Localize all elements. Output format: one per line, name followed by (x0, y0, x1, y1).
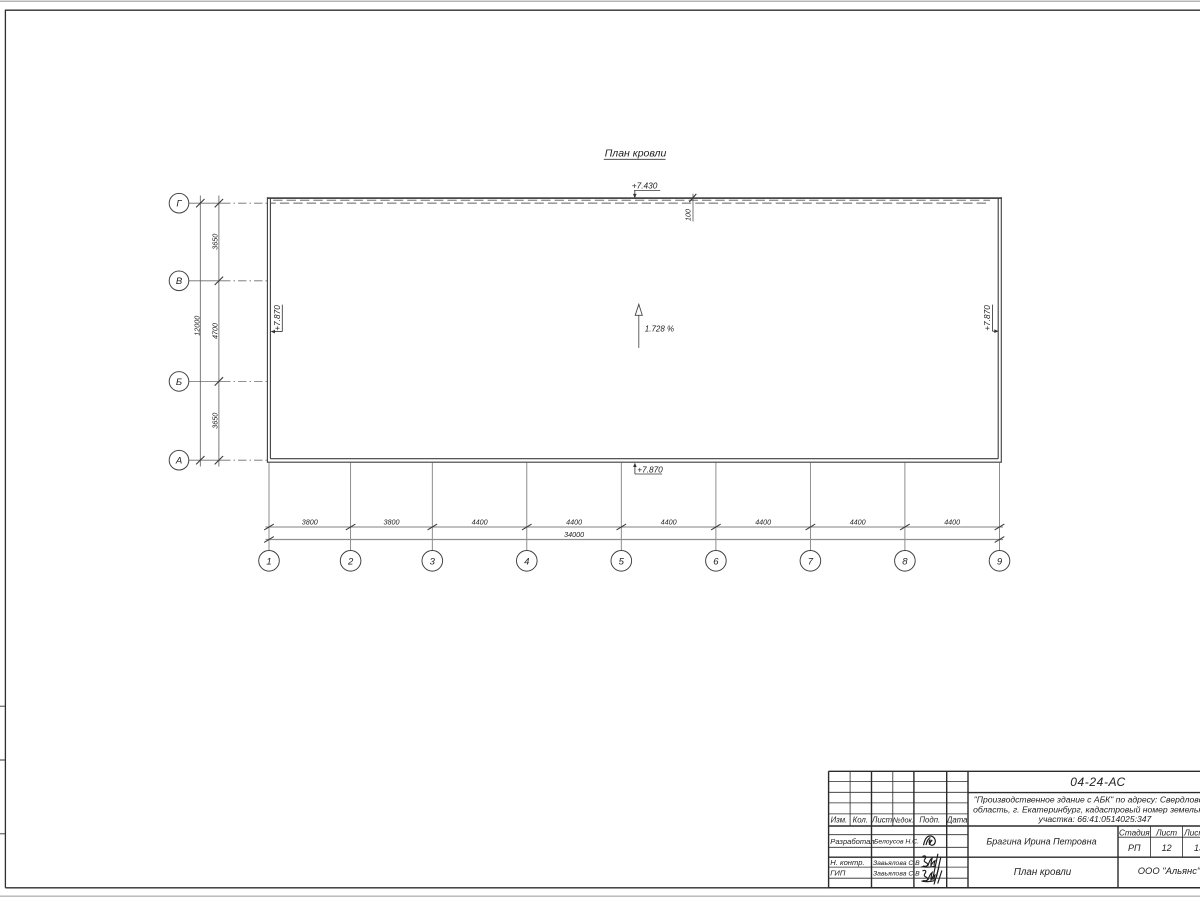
svg-text:Белоусов Н.С.: Белоусов Н.С. (874, 839, 919, 846)
svg-text:12: 12 (1162, 843, 1172, 853)
svg-text:5: 5 (619, 556, 625, 567)
svg-text:Г: Г (176, 199, 182, 210)
svg-text:34000: 34000 (564, 530, 584, 539)
svg-text:13: 13 (1194, 843, 1200, 853)
svg-text:2: 2 (347, 556, 354, 567)
svg-text:участка: 66:41:0514025:347: участка: 66:41:0514025:347 (1038, 814, 1153, 824)
svg-text:4400: 4400 (755, 518, 771, 527)
svg-text:4400: 4400 (944, 518, 960, 527)
svg-text:12000: 12000 (192, 316, 201, 336)
svg-text:1.728 %: 1.728 % (645, 325, 674, 334)
svg-text:Лист: Лист (871, 816, 893, 825)
svg-text:Лист: Лист (1155, 828, 1177, 837)
svg-text:В: В (176, 276, 183, 287)
svg-text:Листов: Листов (1183, 828, 1200, 837)
svg-text:ГИП: ГИП (830, 868, 846, 877)
svg-text:Подп.: Подп. (919, 816, 940, 825)
svg-text:4400: 4400 (566, 518, 582, 527)
svg-text:1: 1 (266, 556, 271, 567)
svg-text:План кровли: План кровли (1014, 867, 1072, 878)
svg-text:Дата: Дата (946, 816, 968, 825)
svg-text:"Производственное здание с АБК: "Производственное здание с АБК" по адрес… (974, 794, 1200, 804)
svg-text:9: 9 (997, 556, 1003, 567)
svg-text:+7.430: +7.430 (632, 181, 658, 191)
svg-text:Б: Б (176, 377, 182, 388)
svg-text:область, г. Екатеринбург, када: область, г. Екатеринбург, кадастровый но… (973, 804, 1200, 814)
svg-text:Н. контр.: Н. контр. (830, 858, 864, 867)
svg-text:+7.870: +7.870 (982, 305, 992, 331)
svg-text:Завьялова С.В: Завьялова С.В (873, 870, 920, 877)
svg-text:+7.870: +7.870 (637, 464, 663, 474)
svg-text:№док.: №док. (893, 816, 914, 825)
svg-text:4400: 4400 (661, 518, 677, 527)
svg-text:ООО "Альянс": ООО "Альянс" (1138, 865, 1200, 876)
svg-text:Разработал: Разработал (830, 837, 875, 846)
svg-text:3650: 3650 (211, 413, 220, 429)
svg-text:7: 7 (808, 556, 814, 567)
svg-text:3650: 3650 (211, 234, 220, 250)
svg-text:Брагина Ирина Петровна: Брагина Ирина Петровна (986, 837, 1096, 847)
svg-text:4400: 4400 (850, 518, 866, 527)
svg-text:Изм.: Изм. (831, 816, 848, 825)
svg-text:6: 6 (713, 556, 719, 567)
svg-text:3800: 3800 (302, 518, 318, 527)
svg-text:4: 4 (524, 556, 529, 567)
svg-text:4700: 4700 (211, 323, 220, 339)
svg-text:А: А (175, 456, 182, 467)
svg-text:100: 100 (683, 209, 692, 221)
svg-text:04-24-АС: 04-24-АС (1070, 775, 1125, 789)
svg-text:3: 3 (430, 556, 436, 567)
svg-text:РП: РП (1128, 843, 1141, 853)
svg-text:План кровли: План кровли (605, 148, 667, 160)
svg-text:Завьялова С.В: Завьялова С.В (873, 860, 920, 867)
svg-text:3800: 3800 (384, 518, 400, 527)
svg-text:8: 8 (902, 556, 908, 567)
svg-text:4400: 4400 (472, 518, 488, 527)
svg-text:+7.870: +7.870 (272, 305, 282, 331)
svg-text:Стадия: Стадия (1119, 828, 1150, 837)
svg-text:Кол.: Кол. (853, 816, 868, 825)
